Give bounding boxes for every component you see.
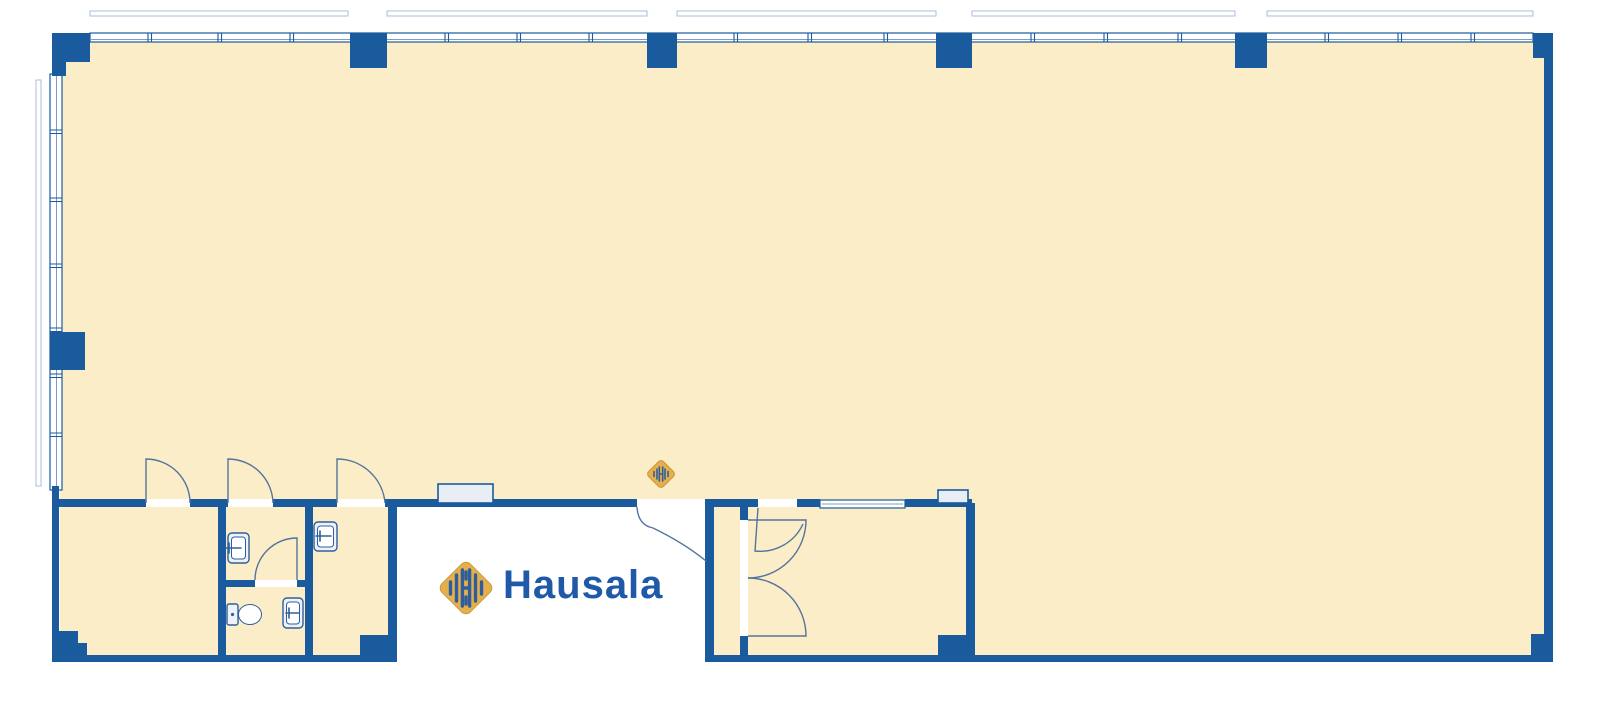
right-wall: [1544, 33, 1553, 662]
bottom-wall-right: [705, 655, 1553, 662]
top-window-wall: [90, 33, 1533, 42]
restroom-inner-wall-b: [297, 580, 313, 587]
pillar: [936, 33, 972, 68]
right-room-partition-bottom: [740, 636, 748, 662]
wall-leftblock-right: [388, 503, 397, 662]
hausala-diamond-icon: [438, 560, 495, 617]
floor-area: [60, 41, 1545, 658]
restroom-inner-wall-a: [226, 580, 255, 587]
right-room-partition-top: [740, 503, 748, 520]
right-room-corner-block: [938, 635, 973, 658]
left-lower-wall: [52, 486, 59, 662]
wall-panel-right: [938, 490, 968, 503]
pillar: [50, 332, 85, 370]
sink-icon: [314, 522, 337, 551]
toilet-icon: [227, 604, 262, 625]
pillar: [1235, 33, 1267, 68]
wall-restroom-sideroom: [305, 503, 313, 655]
bottom-wall-left: [52, 655, 397, 662]
sink-icon: [225, 533, 249, 563]
left-window-wall: [50, 74, 62, 490]
brand-wordmark: Hausala: [503, 563, 663, 608]
wall-panel-left: [438, 484, 493, 503]
sink-icon: [283, 598, 303, 628]
wall-room1-restroom: [218, 503, 226, 655]
main-entrance-door: [637, 507, 706, 561]
right-room-window: [820, 500, 905, 508]
floor-plan-drawing: [0, 0, 1600, 706]
right-room-left-wall: [705, 503, 714, 662]
floor-plan-canvas: Hausala: [0, 0, 1600, 706]
pillar: [350, 33, 387, 68]
side-room-corner-block: [360, 635, 388, 658]
pillar: [647, 33, 677, 68]
